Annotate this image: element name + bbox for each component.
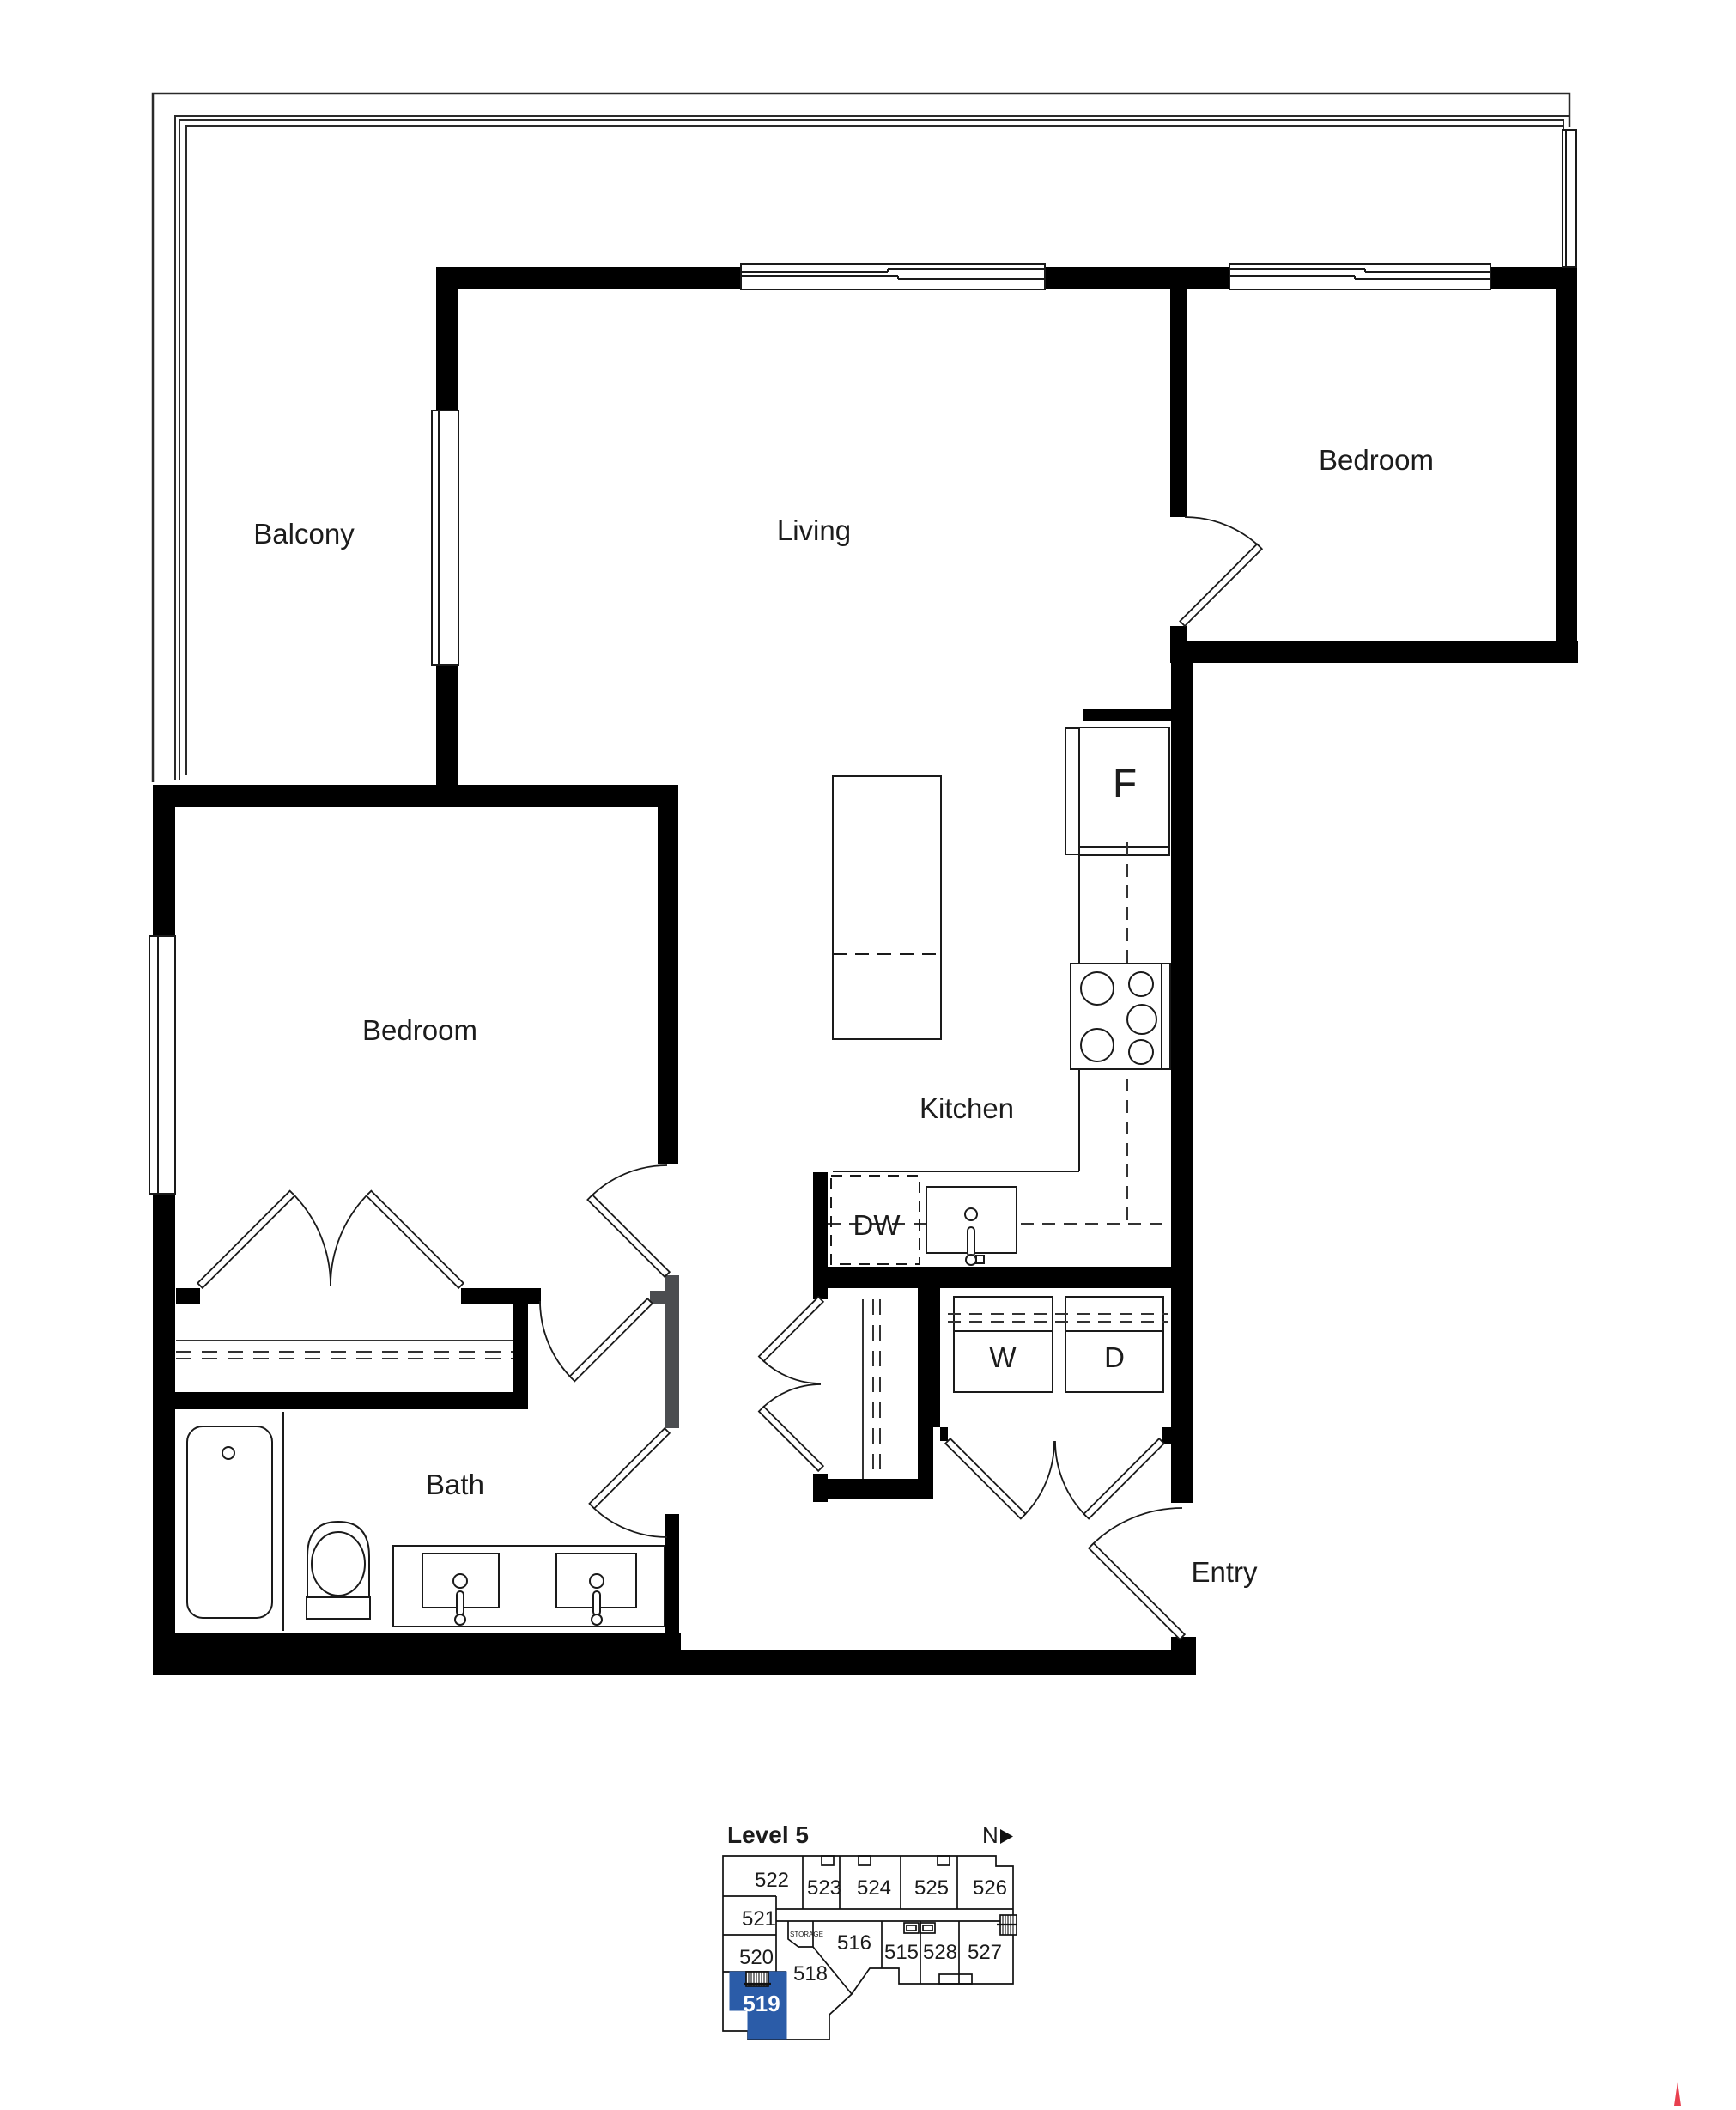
svg-text:STORAGE: STORAGE <box>790 1931 823 1938</box>
svg-text:528: 528 <box>923 1941 957 1964</box>
svg-text:519: 519 <box>743 1991 780 2016</box>
svg-text:518: 518 <box>793 1962 828 1985</box>
svg-text:515: 515 <box>884 1941 919 1964</box>
svg-text:F: F <box>1113 761 1137 806</box>
svg-text:524: 524 <box>857 1876 891 1900</box>
svg-text:523: 523 <box>807 1876 841 1900</box>
svg-text:526: 526 <box>973 1876 1007 1900</box>
svg-text:W: W <box>989 1341 1017 1373</box>
svg-text:Balcony: Balcony <box>253 518 355 550</box>
svg-text:516: 516 <box>837 1931 871 1955</box>
svg-text:Bath: Bath <box>426 1468 484 1500</box>
svg-text:Bedroom: Bedroom <box>362 1014 477 1046</box>
svg-text:Level 5: Level 5 <box>727 1821 809 1848</box>
svg-text:527: 527 <box>968 1941 1002 1964</box>
svg-text:Living: Living <box>777 514 851 546</box>
svg-text:525: 525 <box>914 1876 949 1900</box>
svg-text:521: 521 <box>742 1907 776 1931</box>
svg-text:Kitchen: Kitchen <box>920 1092 1014 1124</box>
svg-text:DW: DW <box>853 1209 901 1241</box>
svg-text:522: 522 <box>755 1869 789 1892</box>
svg-text:Entry: Entry <box>1191 1556 1258 1588</box>
svg-text:520: 520 <box>739 1946 774 1969</box>
svg-text:D: D <box>1104 1341 1125 1373</box>
svg-text:Bedroom: Bedroom <box>1319 444 1434 476</box>
svg-text:N: N <box>982 1822 999 1848</box>
